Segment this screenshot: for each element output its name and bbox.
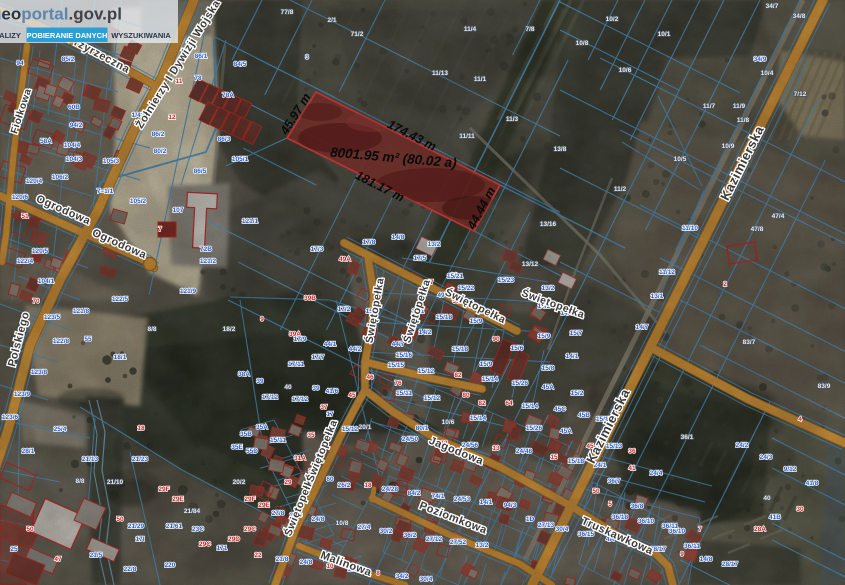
svg-text:90: 90 [492,336,500,343]
svg-text:21/23: 21/23 [132,456,149,463]
svg-text:36/11: 36/11 [662,523,678,530]
svg-text:ALIZY: ALIZY [0,31,21,40]
svg-text:86/2: 86/2 [152,131,165,138]
svg-text:36/2: 36/2 [404,532,417,539]
svg-text:25: 25 [10,546,18,553]
svg-text:85/2: 85/2 [62,56,75,63]
svg-text:14/1: 14/1 [566,353,579,360]
svg-text:10/5: 10/5 [674,156,687,163]
svg-text:17/3: 17/3 [311,246,324,253]
svg-text:29C: 29C [199,541,211,548]
svg-text:17/8: 17/8 [363,239,376,246]
svg-text:11/12: 11/12 [659,269,675,276]
svg-text:17/5: 17/5 [414,255,427,262]
svg-text:83/7: 83/7 [743,339,756,346]
svg-text:4: 4 [798,416,802,423]
svg-text:78A: 78A [222,92,234,99]
svg-text:8/8: 8/8 [147,326,156,333]
svg-text:24/4: 24/4 [650,470,663,477]
svg-text:21/10: 21/10 [107,479,124,486]
svg-text:15/26: 15/26 [512,380,529,387]
svg-text:11/1: 11/1 [474,76,487,83]
svg-text:123/6: 123/6 [2,414,19,421]
svg-text:25/4: 25/4 [54,426,67,433]
svg-text:1D: 1D [526,516,535,523]
svg-text:10/6: 10/6 [442,419,455,426]
svg-text:21/8: 21/8 [276,556,289,563]
svg-text:15/18: 15/18 [436,314,453,321]
svg-text:geoportal.gov.pl: geoportal.gov.pl [0,5,122,24]
svg-text:15/22: 15/22 [458,285,475,292]
svg-text:23C: 23C [192,526,204,533]
svg-text:34/7: 34/7 [766,3,779,10]
svg-text:24/50: 24/50 [402,436,419,443]
svg-text:24/28: 24/28 [382,486,399,493]
svg-text:105/1: 105/1 [232,156,249,163]
svg-text:9: 9 [260,316,264,323]
svg-text:11/4: 11/4 [464,26,477,33]
svg-text:47/4: 47/4 [772,213,785,220]
svg-text:13/12: 13/12 [522,261,539,268]
svg-text:123/8: 123/8 [31,369,48,376]
svg-text:55D: 55D [246,448,258,455]
svg-text:122/5: 122/5 [112,296,129,303]
svg-text:80/2: 80/2 [154,148,167,155]
svg-text:17/2: 17/2 [338,306,351,313]
svg-text:82: 82 [454,372,462,379]
svg-text:29C: 29C [244,526,256,533]
svg-text:122/4: 122/4 [17,258,34,265]
svg-text:20/2: 20/2 [233,479,246,486]
svg-text:47/8: 47/8 [751,226,764,233]
svg-text:29F: 29F [158,486,169,493]
svg-text:POBIERANIE DANYCH: POBIERANIE DANYCH [27,31,108,40]
svg-text:104/1: 104/1 [38,278,55,285]
svg-text:84/2: 84/2 [408,490,421,497]
svg-text:24/8: 24/8 [312,516,325,523]
svg-text:5: 5 [608,501,612,508]
svg-text:12: 12 [168,114,176,121]
svg-text:11/2: 11/2 [614,186,627,193]
svg-text:60B: 60B [68,104,80,111]
svg-text:15/11: 15/11 [270,437,286,444]
svg-text:11/3: 11/3 [506,116,519,123]
svg-text:10/8: 10/8 [336,520,349,527]
svg-text:17/9: 17/9 [294,336,307,343]
svg-text:14/7: 14/7 [636,324,649,331]
svg-text:2/1: 2/1 [327,17,336,24]
svg-text:27/4: 27/4 [358,524,371,531]
svg-text:84/5: 84/5 [234,61,247,68]
svg-text:11: 11 [176,78,183,85]
svg-text:45A: 45A [542,384,554,391]
svg-text:86/5: 86/5 [194,168,207,175]
svg-text:64: 64 [505,400,513,407]
svg-text:24/2: 24/2 [736,442,749,449]
svg-text:10/8: 10/8 [576,40,589,47]
svg-text:40: 40 [284,384,292,391]
svg-text:28/17: 28/17 [722,561,739,568]
svg-text:36: 36 [628,448,636,455]
svg-text:22/8: 22/8 [124,566,137,573]
svg-text:21/84: 21/84 [184,508,201,515]
svg-text:29E: 29E [172,496,184,503]
svg-text:35A: 35A [256,424,268,431]
svg-text:120/5: 120/5 [32,248,49,255]
svg-text:50: 50 [592,488,600,495]
svg-text:18: 18 [364,482,372,489]
svg-text:45A: 45A [560,428,572,435]
svg-text:15/6: 15/6 [511,345,524,352]
svg-text:104/4: 104/4 [64,142,81,149]
svg-text:29F: 29F [244,496,255,503]
svg-text:15/12: 15/12 [418,368,435,375]
svg-text:78: 78 [194,75,202,82]
svg-text:44/2: 44/2 [349,346,362,353]
svg-text:11/7: 11/7 [703,103,716,110]
svg-text:15/14: 15/14 [482,376,499,383]
svg-text:13/1: 13/1 [651,293,664,300]
svg-text:39B: 39B [304,295,316,302]
svg-text:94/2: 94/2 [70,122,83,129]
svg-text:13/16: 13/16 [540,221,557,228]
svg-text:51: 51 [21,213,29,220]
svg-text:34/9: 34/9 [754,56,767,63]
svg-text:70: 70 [32,298,40,305]
svg-text:14/1: 14/1 [480,499,493,506]
svg-text:14/8: 14/8 [700,556,713,563]
svg-text:36/11: 36/11 [684,543,700,550]
svg-text:17: 17 [326,411,334,418]
svg-text:9/12: 9/12 [784,466,797,473]
svg-text:30/4: 30/4 [556,526,569,533]
svg-text:8/8: 8/8 [75,478,84,485]
svg-text:24/48: 24/48 [516,448,533,455]
svg-text:21/61: 21/61 [166,523,183,530]
svg-text:15/14: 15/14 [522,403,539,410]
svg-text:36/1: 36/1 [681,434,694,441]
svg-text:74/1: 74/1 [432,493,445,500]
svg-text:40: 40 [763,495,771,502]
svg-text:13: 13 [492,445,500,452]
svg-text:120/6: 120/6 [12,194,29,201]
svg-text:7: 7 [698,526,702,533]
svg-text:27/52: 27/52 [450,539,467,546]
svg-text:17I: 17I [135,536,144,543]
svg-text:13/2: 13/2 [428,241,441,248]
svg-text:30: 30 [796,506,804,513]
svg-text:27/13: 27/13 [538,522,555,529]
svg-text:13/8: 13/8 [554,146,567,153]
svg-text:34/2: 34/2 [396,573,409,580]
svg-text:38A: 38A [238,371,250,378]
svg-text:82: 82 [478,400,486,407]
svg-text:104/3: 104/3 [66,156,83,163]
svg-text:36/8: 36/8 [631,503,644,510]
svg-text:8: 8 [376,570,380,577]
svg-text:80: 80 [462,392,470,399]
svg-text:15/12: 15/12 [424,395,441,402]
svg-text:41: 41 [628,465,636,472]
svg-text:27/8: 27/8 [272,510,285,517]
svg-text:41B: 41B [769,514,781,521]
svg-text:26/2: 26/2 [338,482,351,489]
svg-text:15/18: 15/18 [452,346,469,353]
svg-text:123/9: 123/9 [14,391,31,398]
svg-text:39: 39 [312,385,320,392]
svg-text:3: 3 [305,54,309,61]
svg-text:121/2: 121/2 [200,258,217,265]
svg-text:39: 39 [256,378,264,385]
svg-text:17/11: 17/11 [288,361,304,368]
svg-text:41/6: 41/6 [326,388,339,395]
svg-text:15/9: 15/9 [470,318,483,325]
svg-text:45C: 45C [554,406,566,413]
svg-text:15/14: 15/14 [470,415,487,422]
svg-text:50: 50 [26,526,34,533]
svg-text:83/9: 83/9 [818,383,831,390]
svg-text:15/9: 15/9 [480,361,493,368]
svg-text:20/1: 20/1 [359,424,372,431]
svg-text:2: 2 [723,281,727,288]
svg-text:31A: 31A [294,455,306,462]
svg-text:121/8: 121/8 [73,308,90,315]
svg-text:47: 47 [54,556,62,563]
svg-text:21/5: 21/5 [90,552,103,559]
svg-text:15/2: 15/2 [571,390,584,397]
svg-text:121/9: 121/9 [180,288,197,295]
svg-text:171: 171 [217,545,228,552]
svg-text:13/2: 13/2 [476,542,489,549]
svg-text:17/12: 17/12 [262,394,279,401]
svg-text:17/12: 17/12 [292,396,309,403]
svg-text:72B: 72B [200,246,212,253]
svg-text:11/13: 11/13 [432,70,448,77]
svg-text:36/10: 36/10 [638,518,655,525]
svg-text:9: 9 [680,551,684,558]
svg-text:15/15: 15/15 [388,362,405,369]
svg-text:105/2: 105/2 [130,198,147,205]
svg-text:58A: 58A [40,138,52,145]
svg-text:7: 7 [158,226,162,233]
svg-text:34/8: 34/8 [793,13,806,20]
svg-text:15: 15 [550,454,558,461]
svg-text:29: 29 [284,479,292,486]
svg-text:10/1: 10/1 [658,31,671,38]
svg-text:37: 37 [320,404,328,411]
svg-text:18: 18 [137,425,145,432]
svg-text:30/2: 30/2 [380,528,393,535]
svg-text:14/2: 14/2 [419,329,432,336]
svg-text:22: 22 [254,552,262,559]
svg-text:80/1: 80/1 [416,425,429,432]
svg-text:36/15: 36/15 [578,531,595,538]
svg-text:15/21: 15/21 [447,273,464,280]
svg-text:21/13: 21/13 [82,456,99,463]
svg-text:7/8: 7/8 [525,26,534,33]
svg-text:94/3: 94/3 [504,502,517,509]
svg-text:28/1: 28/1 [22,448,35,455]
svg-text:11/8: 11/8 [737,117,750,124]
svg-text:18/1: 18/1 [114,354,127,361]
svg-text:45B: 45B [578,412,590,419]
svg-text:13/2: 13/2 [542,285,555,292]
svg-text:18/2: 18/2 [223,326,236,333]
svg-text:36/7: 36/7 [608,478,621,485]
svg-text:15/26: 15/26 [526,425,543,432]
svg-text:29E: 29E [258,502,270,509]
svg-text:76: 76 [394,380,402,387]
svg-text:15/12: 15/12 [342,426,359,433]
svg-text:107: 107 [173,207,184,214]
svg-text:10/2: 10/2 [606,16,619,23]
svg-text:10/6: 10/6 [619,67,632,74]
svg-text:46: 46 [366,374,374,381]
svg-text:WYSZUKIWANIA: WYSZUKIWANIA [111,31,171,40]
svg-text:122/8: 122/8 [53,338,70,345]
svg-text:77/8: 77/8 [281,9,294,16]
svg-text:106/2: 106/2 [52,174,69,181]
svg-text:36/18: 36/18 [612,514,629,521]
svg-text:71/2: 71/2 [351,31,364,38]
svg-text:35B: 35B [240,431,252,438]
svg-text:120/4: 120/4 [26,178,43,185]
svg-text:11/11: 11/11 [459,133,475,140]
svg-text:86/3: 86/3 [218,136,231,143]
svg-text:35E: 35E [231,444,243,451]
svg-text:29D: 29D [228,536,240,543]
svg-text:220: 220 [165,562,176,569]
svg-text:14/8: 14/8 [392,234,405,241]
svg-text:7/12: 7/12 [794,91,807,98]
svg-text:105/3: 105/3 [103,158,120,165]
svg-text:10/4: 10/4 [761,70,774,77]
svg-text:28A: 28A [754,526,766,533]
svg-text:15/13: 15/13 [606,443,623,450]
svg-text:11/10: 11/10 [682,225,698,232]
svg-text:15/9: 15/9 [538,333,551,340]
svg-text:35: 35 [307,432,315,439]
svg-text:17/7: 17/7 [312,354,325,361]
svg-text:123/5: 123/5 [44,314,61,321]
svg-text:7=1/1: 7=1/1 [97,188,114,195]
svg-text:24/3: 24/3 [760,454,773,461]
svg-text:11/9: 11/9 [733,103,746,110]
svg-text:15/16: 15/16 [396,352,413,359]
svg-text:21/29: 21/29 [128,523,145,530]
svg-text:49A: 49A [339,256,351,263]
svg-text:24/8: 24/8 [300,559,313,566]
svg-text:30/4: 30/4 [420,576,433,583]
svg-text:86/1: 86/1 [195,53,208,60]
svg-text:44/1: 44/1 [324,341,337,348]
svg-text:60: 60 [326,476,334,483]
svg-text:94: 94 [16,60,24,67]
svg-text:27/12: 27/12 [426,536,443,543]
svg-text:41/8: 41/8 [806,480,819,487]
svg-text:15/8: 15/8 [542,365,555,372]
svg-text:121/1: 121/1 [242,218,259,225]
svg-text:24/53: 24/53 [454,496,471,503]
svg-text:15/7: 15/7 [570,330,583,337]
svg-text:50: 50 [116,516,124,523]
svg-text:15/23: 15/23 [498,277,515,284]
svg-text:45: 45 [348,392,356,399]
svg-text:10/9: 10/9 [722,143,735,150]
svg-text:55: 55 [84,336,92,343]
svg-text:15/11: 15/11 [396,390,412,397]
